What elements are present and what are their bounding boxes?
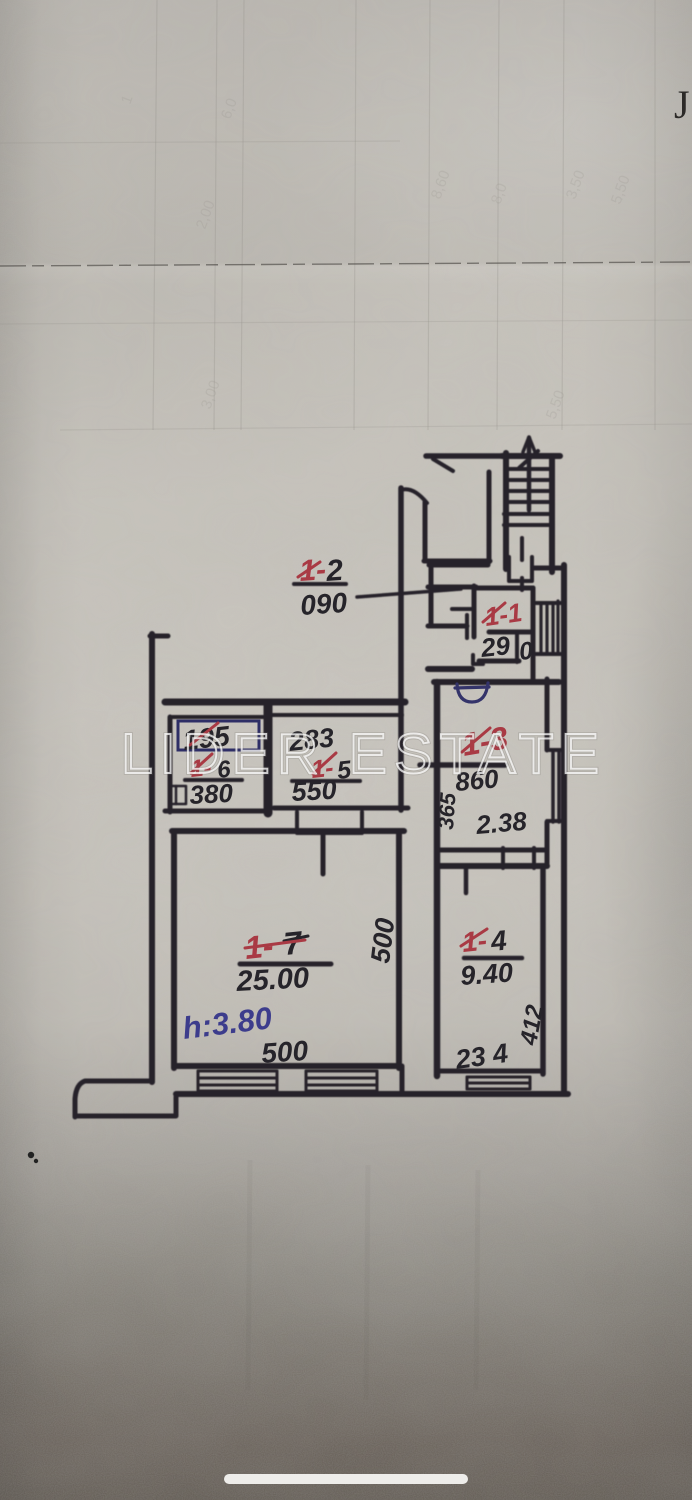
svg-text:500: 500: [260, 1035, 309, 1069]
svg-text:365: 365: [433, 791, 461, 830]
svg-text:2.38: 2.38: [474, 806, 529, 840]
svg-text:500: 500: [365, 916, 400, 964]
svg-text:.: .: [620, 188, 624, 203]
svg-text:090: 090: [299, 587, 348, 621]
svg-text:2: 2: [324, 554, 344, 588]
svg-text:1-1: 1-1: [483, 597, 524, 632]
svg-text:J: J: [674, 82, 690, 127]
svg-text:9.40: 9.40: [459, 957, 514, 991]
svg-text:29: 29: [478, 630, 511, 663]
svg-text:LIDER ESTATE: LIDER ESTATE: [121, 722, 603, 786]
svg-text:25.00: 25.00: [235, 962, 310, 998]
svg-text:1-: 1-: [298, 553, 327, 588]
